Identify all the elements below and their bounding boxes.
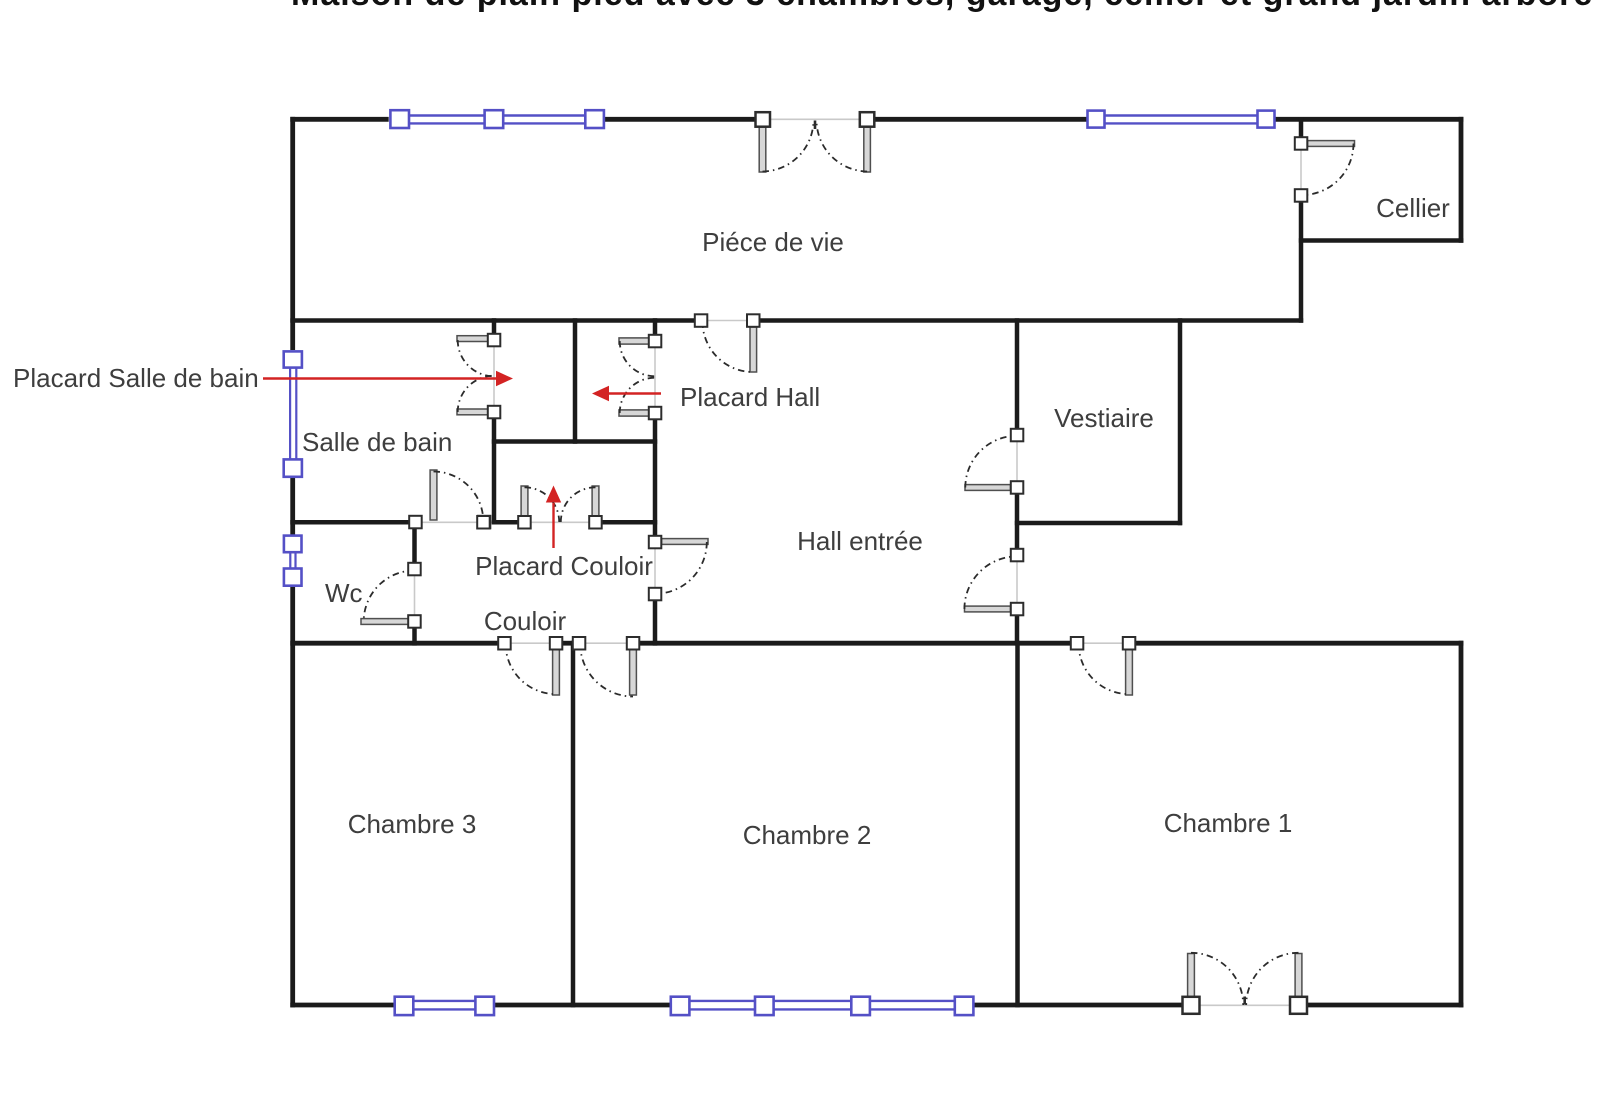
svg-text:Placard Hall: Placard Hall	[680, 382, 820, 412]
svg-text:Hall entrée: Hall entrée	[797, 526, 923, 556]
svg-text:Placard Salle de bain: Placard Salle de bain	[13, 363, 259, 393]
svg-text:Couloir: Couloir	[484, 606, 567, 636]
svg-text:Piéce de vie: Piéce de vie	[702, 227, 844, 257]
svg-text:Cellier: Cellier	[1376, 193, 1450, 223]
svg-text:Wc: Wc	[325, 578, 363, 608]
svg-text:Placard Couloir: Placard Couloir	[475, 551, 653, 581]
svg-text:Chambre 1: Chambre 1	[1164, 808, 1293, 838]
svg-text:Salle de bain: Salle de bain	[302, 427, 452, 457]
svg-text:Chambre 3: Chambre 3	[348, 809, 477, 839]
svg-text:Vestiaire: Vestiaire	[1054, 403, 1154, 433]
svg-text:Chambre 2: Chambre 2	[743, 820, 872, 850]
